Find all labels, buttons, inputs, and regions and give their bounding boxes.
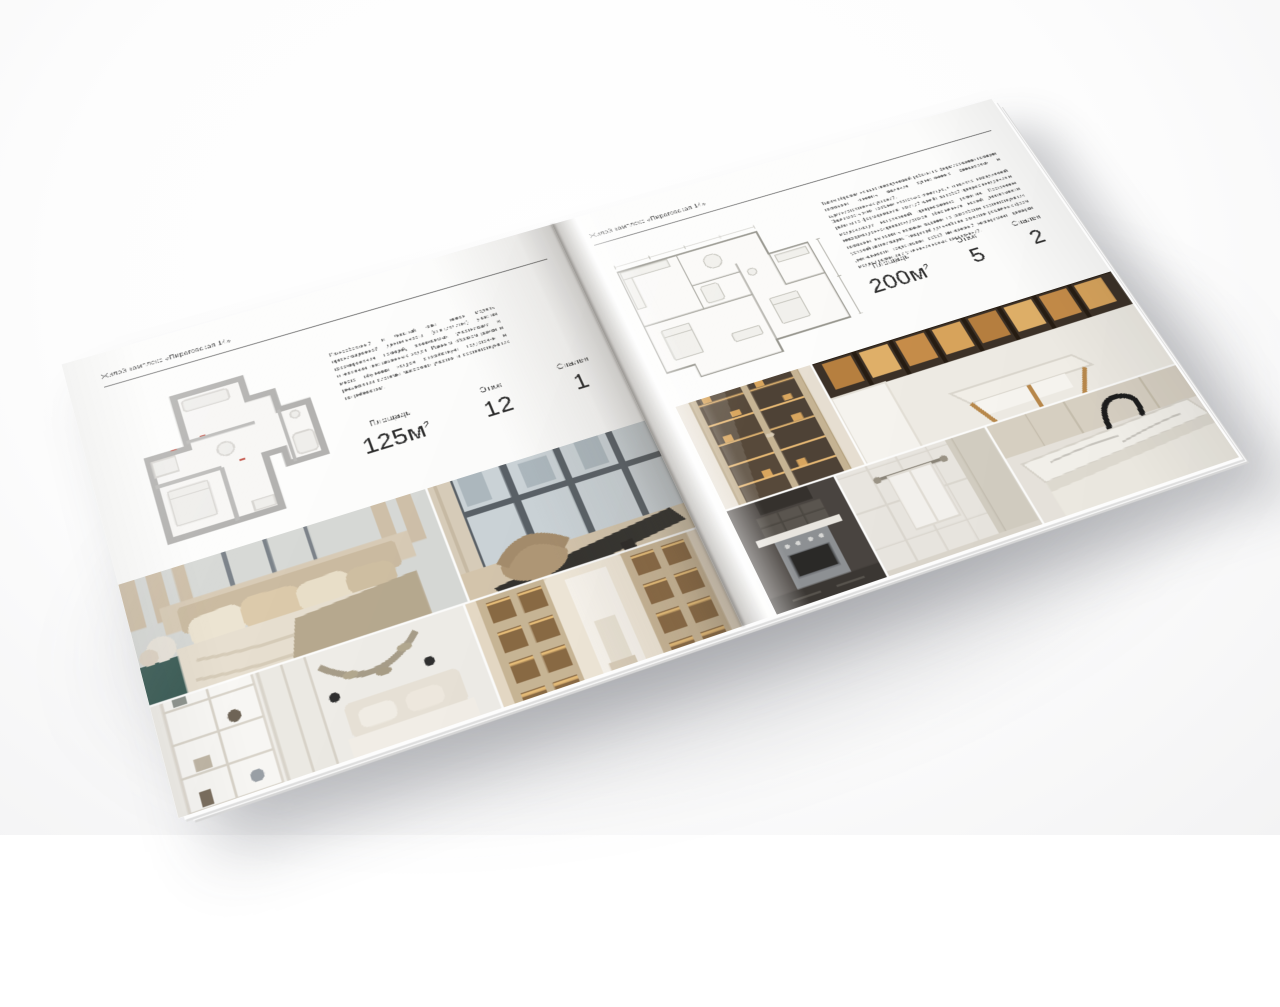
stat-value: 12 (480, 390, 519, 422)
stat-value: 125м2 (359, 415, 436, 460)
stat-floor: Этаж 5 (955, 231, 994, 268)
photo-bedroom-with-pillows (118, 489, 467, 705)
stat-value: 2 (1016, 222, 1058, 251)
stat-floor: Этаж 12 (475, 379, 518, 422)
stat-bedrooms: Спален 2 (1010, 212, 1059, 251)
floor-plan-125m2 (103, 349, 362, 567)
stat-value: 5 (961, 241, 994, 268)
page-header: Жилой комплекс «Пироговская 14» (101, 337, 232, 380)
stat-value: 1 (560, 365, 602, 398)
photo-living-room-window (427, 420, 695, 600)
stat-label: Площадь (355, 404, 426, 432)
stat-area: Площадь 125м2 (355, 404, 437, 460)
photo-study-with-bookshelf (812, 271, 1174, 464)
photo-backdrop: Жилой комплекс «Пироговская 14» (0, 0, 1280, 835)
stat-bedrooms: Спален 1 (555, 354, 602, 398)
